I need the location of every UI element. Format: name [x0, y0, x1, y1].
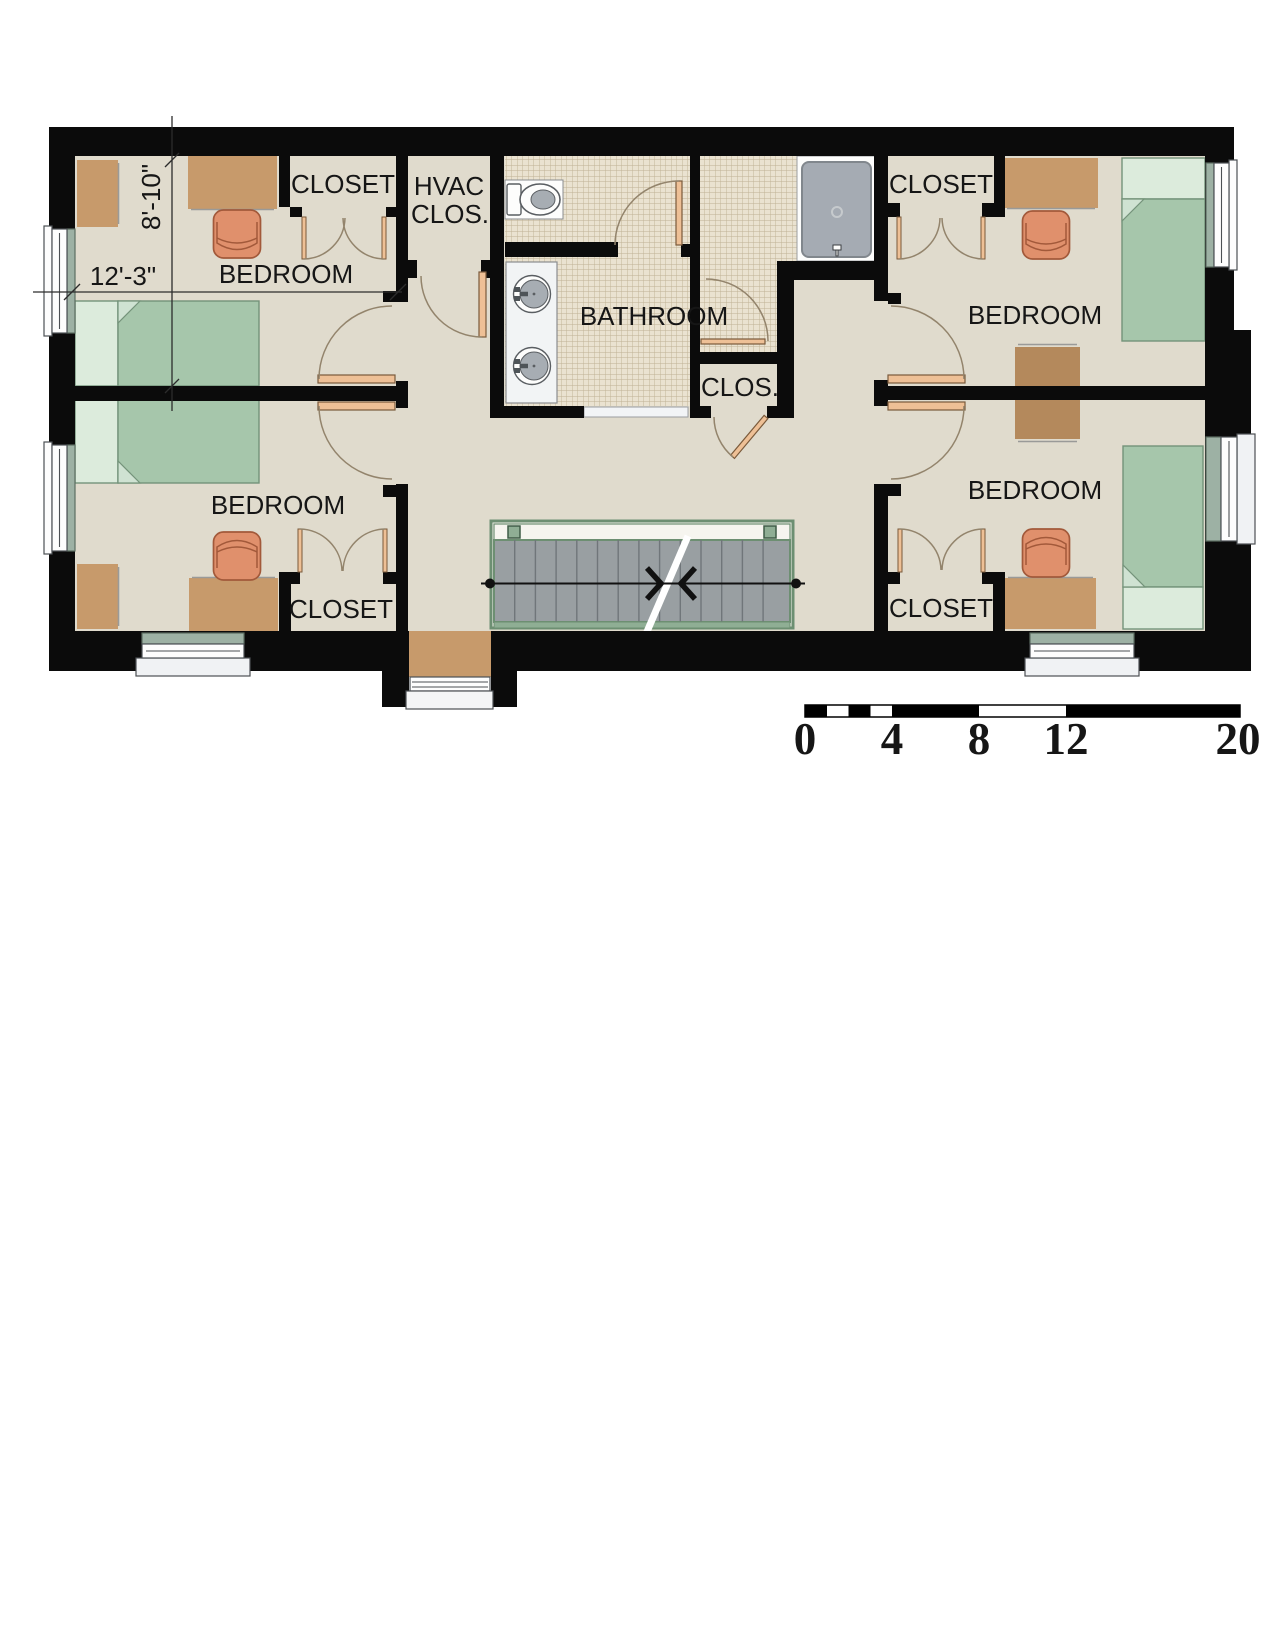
svg-text:CLOSET: CLOSET [291, 169, 395, 199]
svg-text:8: 8 [968, 714, 991, 764]
svg-text:BEDROOM: BEDROOM [968, 475, 1102, 505]
svg-text:0: 0 [794, 714, 817, 764]
svg-text:BEDROOM: BEDROOM [968, 300, 1102, 330]
svg-text:HVAC: HVAC [414, 171, 484, 201]
svg-text:12'-3": 12'-3" [90, 261, 156, 291]
svg-text:CLOSET: CLOSET [889, 169, 993, 199]
svg-text:BEDROOM: BEDROOM [219, 259, 353, 289]
svg-text:8'-10": 8'-10" [136, 164, 166, 230]
svg-text:CLOSET: CLOSET [289, 594, 393, 624]
svg-text:CLOSET: CLOSET [889, 593, 993, 623]
svg-text:CLOS.: CLOS. [701, 372, 779, 402]
svg-text:BATHROOM: BATHROOM [580, 301, 728, 331]
svg-text:12: 12 [1044, 714, 1089, 764]
svg-text:20: 20 [1216, 714, 1261, 764]
svg-text:BEDROOM: BEDROOM [211, 490, 345, 520]
svg-text:4: 4 [881, 714, 904, 764]
svg-text:CLOS.: CLOS. [411, 199, 489, 229]
